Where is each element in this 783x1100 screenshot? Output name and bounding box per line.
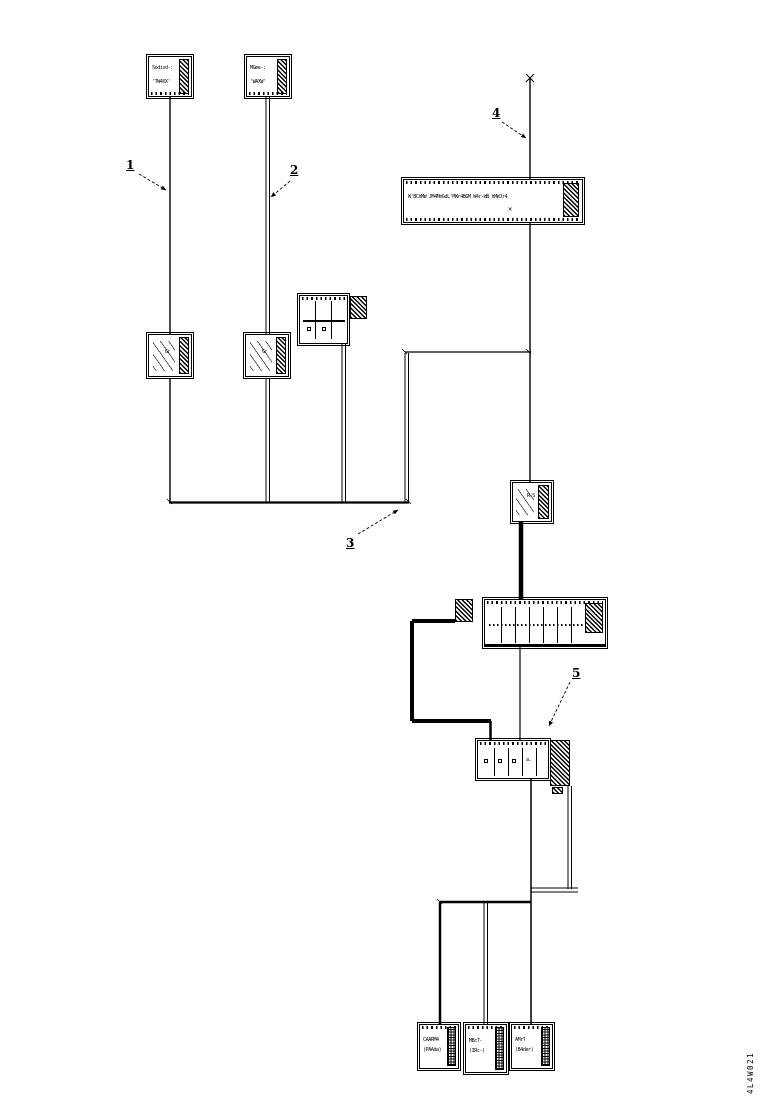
pin-row <box>480 742 546 745</box>
pin-strip-hatch <box>585 603 603 633</box>
coil-box-second: Gr <box>245 334 289 377</box>
wiring-diagram-page: Sodivd-: 'TW4XX' MGme-: 'WAXW' Gr Gr W'B… <box>0 0 783 1100</box>
contact-square <box>307 327 311 331</box>
contact-square <box>512 759 516 763</box>
pin-strip-hatch <box>563 183 579 217</box>
module-top-left: Sodivd-: 'TW4XX' <box>148 56 192 97</box>
callout-5: 5 <box>572 666 580 680</box>
bottom-unit-1-sublabel: (PAAda) <box>423 1047 441 1053</box>
crossing-x-mark: ✕ <box>508 206 512 212</box>
coil-box-second-mark: Gr <box>262 349 267 355</box>
bottom-unit-3: AMrT (B4der) <box>511 1024 553 1069</box>
coil-box-left-mark: Gr <box>165 349 170 355</box>
relay-block-h-mark: a. <box>526 757 531 763</box>
wire-to-box2-double <box>484 903 488 1024</box>
module-top-left-label: Sodivd-: <box>152 65 173 71</box>
wire-link-double <box>531 888 578 892</box>
connector-d-mark: R-S <box>527 493 535 499</box>
module-top-left-sublabel: 'TW4XX' <box>152 79 170 85</box>
module-top-second: MGme-: 'WAXW' <box>246 56 290 97</box>
relay-contact-bar <box>303 320 345 322</box>
callout-4: 4 <box>492 106 500 120</box>
bottom-unit-3-sublabel: (B4der) <box>515 1047 533 1053</box>
relay-h-pin-tab-hatch <box>552 787 563 794</box>
pin-strip-stipple <box>541 1027 550 1066</box>
contact-square <box>498 759 502 763</box>
pin-strip-hatch <box>276 337 286 374</box>
internal-symbol-scribble <box>153 341 175 371</box>
junction-block-label: W'BChMW JM4MnGdL'MWr4BGM W4r-WB hMWJr4 <box>408 194 560 200</box>
coil-box-left: Gr <box>148 334 192 377</box>
doc-code: 4L4W021 <box>746 1030 755 1094</box>
bottom-unit-2: MBc7- (IRc-) <box>465 1024 507 1073</box>
callout-2: 2 <box>290 163 298 177</box>
bottom-unit-2-label: MBc7- <box>469 1038 482 1044</box>
pin-strip-hatch <box>179 59 189 94</box>
junction-block-long: W'BChMW JM4MnGdL'MWr4BGM W4r-WB hMWJr4 ✕ <box>403 179 583 223</box>
fuse-block <box>484 599 606 647</box>
pin-row <box>151 92 189 95</box>
relay-box <box>299 295 348 344</box>
contact-square <box>322 327 326 331</box>
pin-row <box>249 92 287 95</box>
bottom-unit-1: CAARM4 (PAAda) <box>419 1024 459 1069</box>
callout-1: 1 <box>126 158 134 172</box>
wire-module-b-double <box>266 97 270 503</box>
internal-symbol-scribble <box>250 341 272 371</box>
module-top-second-label: MGme-: <box>250 65 266 71</box>
pin-row <box>302 297 345 300</box>
wire-h-right-double <box>568 786 572 889</box>
wire-thick-ground-path <box>412 621 491 721</box>
wire-relay-e-double <box>342 344 346 503</box>
bottom-unit-3-label: AMrT <box>515 1037 525 1043</box>
junction-ticks <box>167 349 531 904</box>
relay-pin-strip-hatch <box>350 296 367 319</box>
bottom-unit-2-sublabel: (IRc-) <box>469 1048 485 1054</box>
callout-3-leader <box>358 510 398 534</box>
fuse-contacts-row <box>489 624 583 626</box>
module-top-second-sublabel: 'WAXW' <box>250 79 266 85</box>
callout-1-leader <box>139 174 166 190</box>
callout-2-leader <box>271 181 290 197</box>
pin-strip-hatch <box>538 485 549 519</box>
contact-square <box>484 759 488 763</box>
pin-strip-hatch <box>179 337 189 374</box>
pin-row <box>406 181 580 184</box>
callout-3: 3 <box>346 536 354 550</box>
wire-layer <box>0 0 783 1100</box>
callout-4-leader <box>502 122 526 138</box>
wire-riser-double <box>405 353 409 503</box>
pin-strip-hatch <box>277 59 287 94</box>
pin-strip-stipple <box>495 1027 504 1070</box>
pin-strip-stipple <box>447 1027 456 1066</box>
callout-5-leader <box>549 682 570 726</box>
relay-h-pin-strip-hatch <box>550 740 570 786</box>
relay-block-h: a. <box>477 740 549 779</box>
connector-d: R-S <box>512 482 552 522</box>
ground-connector <box>455 599 473 622</box>
bottom-unit-1-label: CAARM4 <box>423 1037 439 1043</box>
pin-row <box>406 218 580 221</box>
